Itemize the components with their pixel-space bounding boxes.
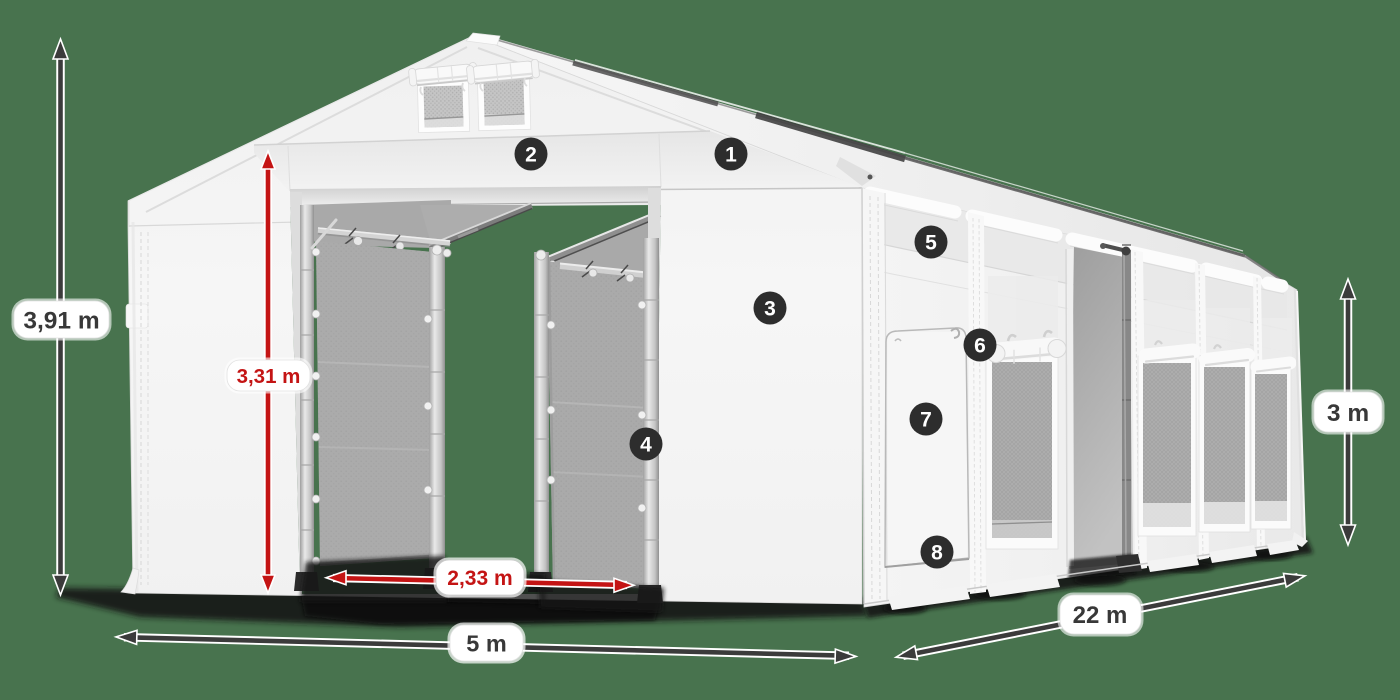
svg-text:6: 6 — [974, 335, 986, 358]
svg-text:22 m: 22 m — [1073, 602, 1128, 629]
svg-text:5: 5 — [925, 232, 937, 255]
svg-text:3,31 m: 3,31 m — [237, 365, 301, 388]
svg-text:7: 7 — [920, 409, 932, 432]
svg-text:4: 4 — [640, 434, 652, 457]
svg-text:5 m: 5 m — [466, 631, 507, 657]
svg-text:2,33 m: 2,33 m — [447, 567, 512, 590]
svg-text:2: 2 — [525, 144, 537, 167]
svg-text:3,91 m: 3,91 m — [23, 308, 99, 335]
svg-text:8: 8 — [931, 542, 943, 565]
svg-text:3 m: 3 m — [1327, 400, 1369, 427]
svg-text:1: 1 — [725, 144, 737, 167]
svg-text:3: 3 — [764, 298, 776, 321]
